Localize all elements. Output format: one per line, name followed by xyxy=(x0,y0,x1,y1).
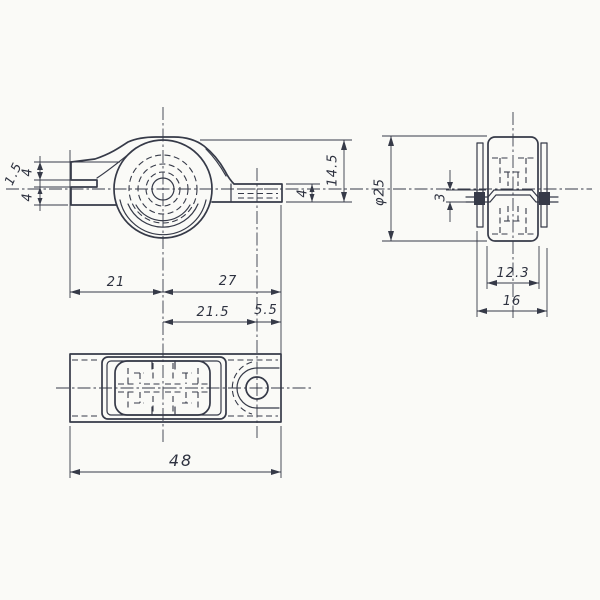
dim-label-55: 5.5 xyxy=(254,303,278,318)
drawing-sheet: 4 1.5 4 4 14.5 φ25 xyxy=(0,0,600,600)
dim-label-fork-bottom: 4 xyxy=(21,192,36,201)
technical-drawing: 4 1.5 4 4 14.5 φ25 xyxy=(0,0,600,600)
dim-label-groove: 12.3 xyxy=(497,266,530,281)
bracket-outline xyxy=(71,137,282,202)
dim-label-48: 48 xyxy=(169,451,193,470)
dim-diameter: φ25 xyxy=(373,136,488,241)
dim-label-diameter: φ25 xyxy=(373,178,388,206)
dim-label-fork-gap: 1.5 xyxy=(2,160,26,188)
side-view xyxy=(71,137,282,238)
dim-label-width: 16 xyxy=(503,294,522,309)
bracket-fork-tongue xyxy=(71,162,116,205)
dim-total-48: 48 xyxy=(70,426,281,478)
dim-label-axle: 3 xyxy=(434,192,449,201)
dim-label-height: 14.5 xyxy=(326,154,341,187)
dim-label-21: 21 xyxy=(107,275,126,290)
dim-label-tab-thickness: 4 xyxy=(296,188,311,197)
dim-section-widths: 12.3 16 xyxy=(477,231,547,317)
axle-rivet-right xyxy=(539,192,550,205)
dim-label-27: 27 xyxy=(219,274,238,289)
dim-label-215: 21.5 xyxy=(197,305,230,320)
dim-row-215-55: 21.5 5.5 xyxy=(163,303,281,325)
dim-fork-thicknesses: 4 1.5 4 xyxy=(2,156,120,211)
dim-row-21-27: 21 27 xyxy=(70,150,281,357)
axle-rivet-left xyxy=(474,192,485,205)
